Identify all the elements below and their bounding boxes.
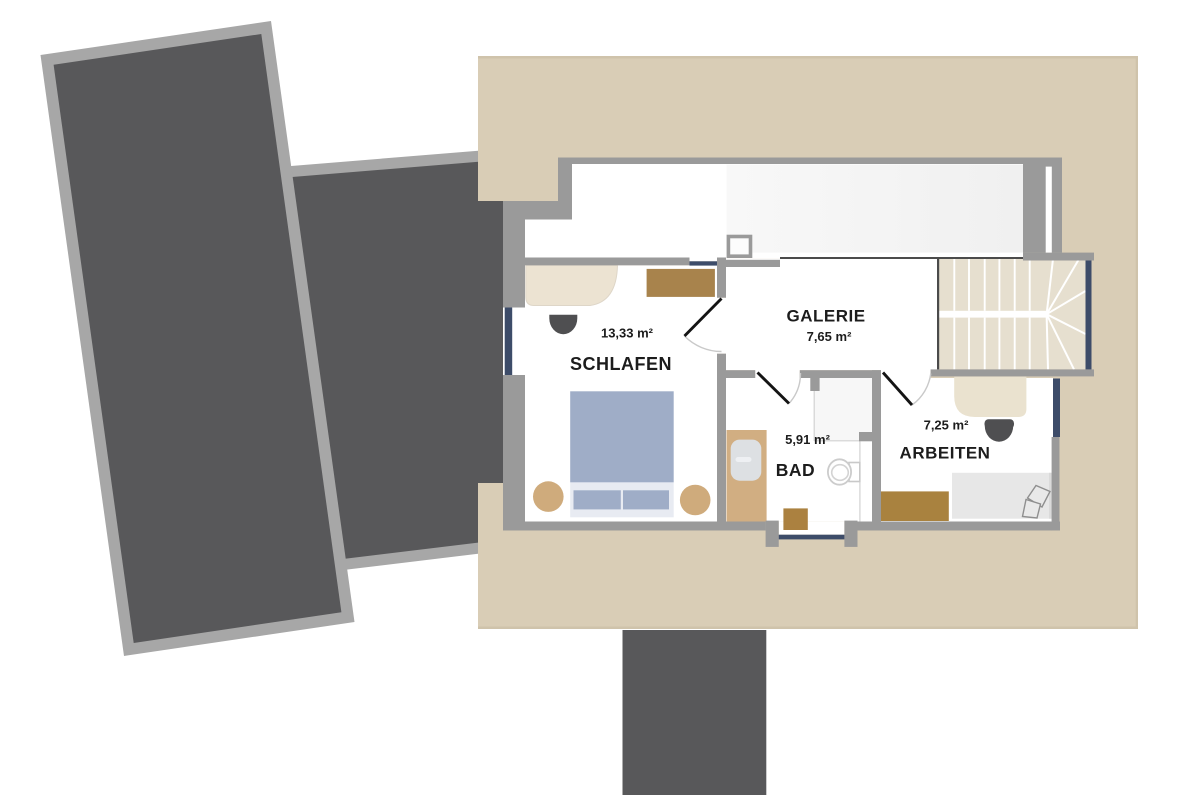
- svg-text:13,33 m²: 13,33 m²: [601, 326, 654, 341]
- svg-text:GALERIE: GALERIE: [786, 307, 865, 326]
- svg-text:ARBEITEN: ARBEITEN: [900, 444, 991, 463]
- svg-text:SCHLAFEN: SCHLAFEN: [570, 354, 672, 374]
- svg-text:5,91 m²: 5,91 m²: [785, 432, 830, 447]
- svg-text:BAD: BAD: [776, 460, 815, 480]
- svg-text:7,65 m²: 7,65 m²: [807, 329, 852, 344]
- svg-text:7,25 m²: 7,25 m²: [924, 418, 969, 433]
